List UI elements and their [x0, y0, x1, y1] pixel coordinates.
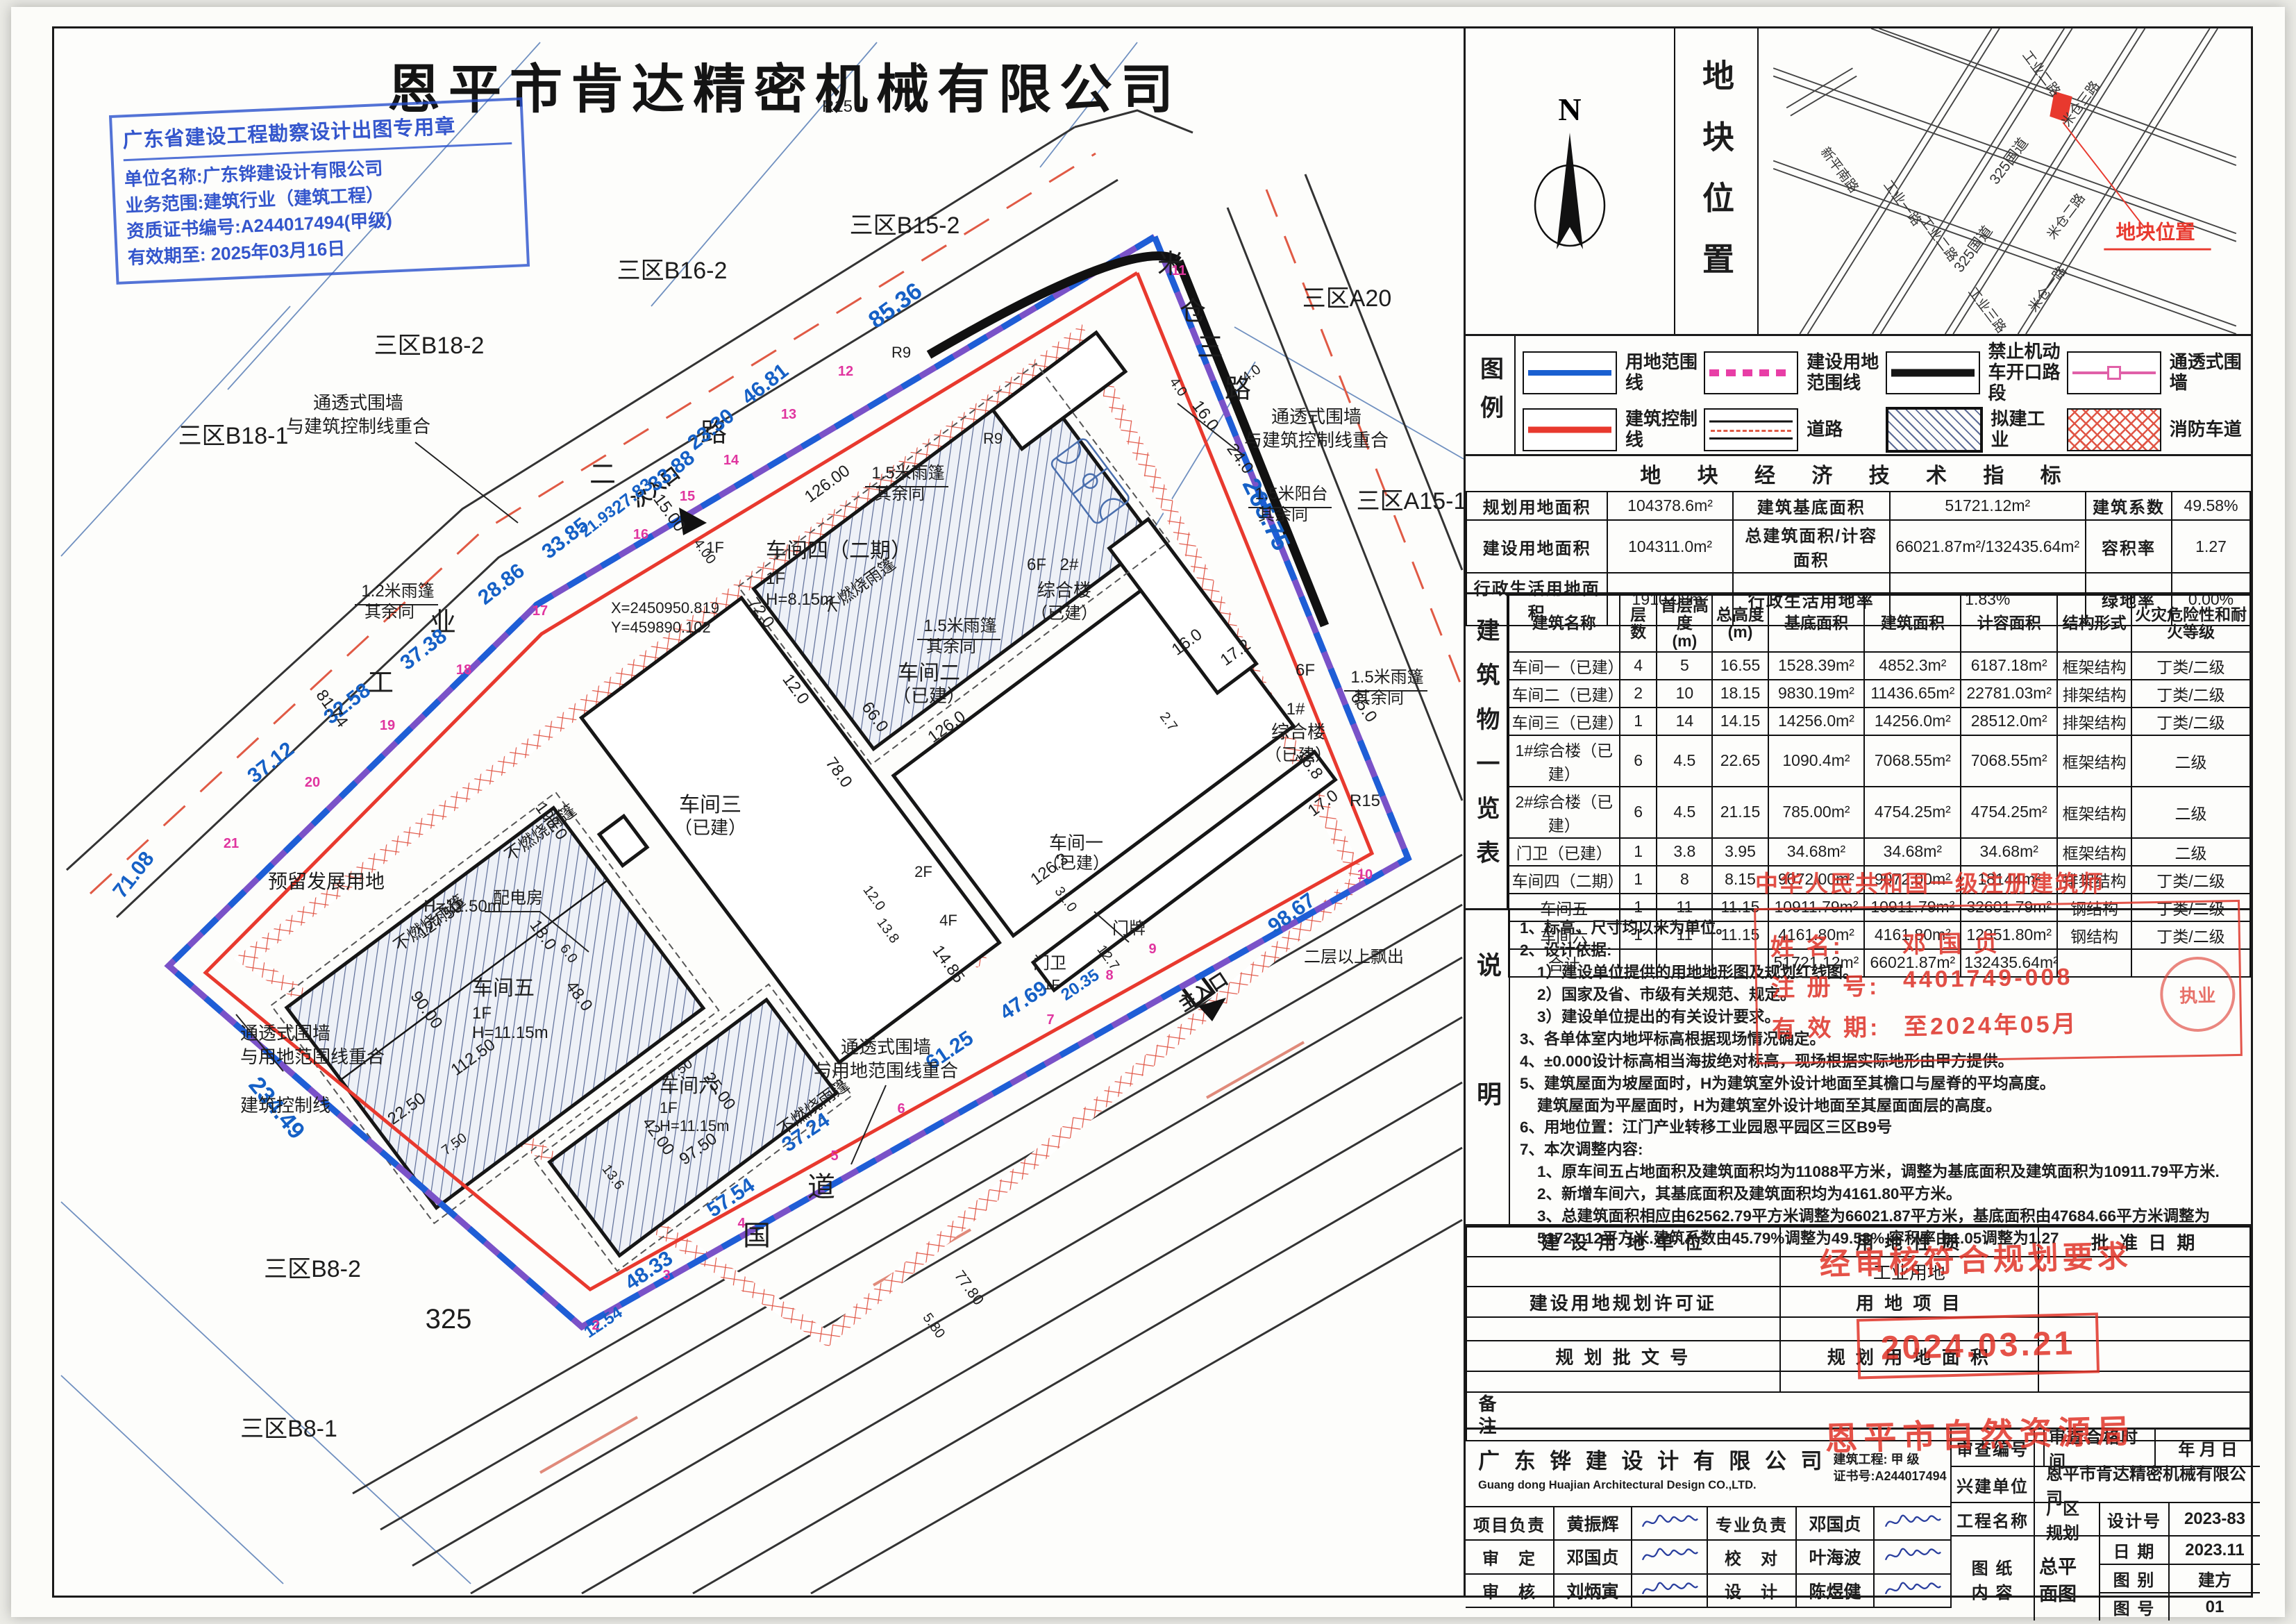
buildings-cell: 11436.65m² [1864, 680, 1961, 708]
company-cert: 证书号:A244017494 [1834, 1468, 1947, 1484]
econ-row: 建设用地面积104311.0m²总建筑面积/计容面积66021.87m²/132… [1466, 520, 2250, 573]
buildings-cell: 4.5 [1657, 787, 1712, 838]
buildings-header: 建筑名称 [1509, 595, 1620, 652]
buildings-row: 1#综合楼（已建）64.522.651090.4m²7068.55m²7068.… [1509, 735, 2250, 787]
plan-label: R9 [891, 344, 911, 361]
map-side-title: 地块位置 [1693, 59, 1739, 303]
date-value: 2023.11 [2170, 1537, 2260, 1564]
location-map: 新平南路工业一路工业二路工业二路工业三路325国道325国道米仓三路米仓二路米仓… [1759, 28, 2251, 334]
plan-label: 与建筑控制线重合 [1244, 430, 1389, 451]
location-map-svg: 新平南路工业一路工业二路工业二路工业三路325国道325国道米仓三路米仓二路米仓… [1759, 28, 2251, 334]
personnel-name: 黄振辉 [1555, 1507, 1632, 1539]
notes-side-col: 说明 [1466, 910, 1510, 1224]
legend-swatch-blue [1523, 351, 1617, 394]
plan-label: （已建） [1265, 746, 1332, 764]
econ-label: 容积率 [2086, 520, 2172, 573]
note-line: 5、建筑屋面为坡屋面时，H为建筑室外设计地面至其檐口与屋脊的平均高度。 [1520, 1073, 2247, 1095]
buildings-cell: 4852.3m² [1864, 652, 1961, 680]
buildings-cell: 9830.19m² [1768, 680, 1865, 708]
plan-label: （已建） [1031, 604, 1098, 623]
plan-label: 工业二路 [1917, 213, 1961, 265]
econ-section: 地 块 经 济 技 术 指 标 规划用地面积104378.6m²建筑基底面积51… [1466, 456, 2251, 594]
legend-label: 通透式围墙 [2170, 352, 2244, 394]
buildings-cell: 4754.25m² [1961, 787, 2057, 838]
buildings-cell: 34.68m² [1864, 838, 1961, 866]
plan-label: X=2450950.819 [611, 599, 719, 617]
plan-label: 7 [1046, 1012, 1054, 1028]
note-line: 1、原车间五占地面积及建筑面积均为11088平方米，调整为基底面积及建筑面积为1… [1520, 1161, 2247, 1183]
buildings-cell: 14256.0m² [1864, 708, 1961, 735]
blue-design-stamp: 广东省建设工程勘察设计出图专用章 单位名称:广东铧建设计有限公司 业务范围:建筑… [109, 97, 530, 285]
plan-label: 1F [1044, 978, 1059, 993]
map-side-title-col: 地块位置 [1674, 28, 1759, 334]
plan-label: 三区A20 [1302, 285, 1392, 312]
bldg-power-room [599, 816, 647, 865]
project-value: 厂区规划 [2035, 1503, 2100, 1535]
legend-item: 用地范围线 [1523, 342, 1700, 404]
personnel-name: 邓国贞 [1797, 1507, 1875, 1539]
plan-label: 车间六 [660, 1075, 718, 1096]
plan-label: 46.81 [737, 359, 792, 409]
company-name-en: Guang dong Huajian Architectural Design … [1478, 1479, 1827, 1492]
buildings-side-title: 建筑物一览表 [1469, 618, 1503, 885]
buildings-cell: 3.95 [1712, 838, 1768, 866]
personnel-role: 项目负责 [1466, 1507, 1555, 1539]
plan-label: 11 [1171, 263, 1186, 278]
buildings-side-col: 建筑物一览表 [1466, 594, 1508, 908]
right-panel: N 地块位置 [1464, 28, 2251, 1596]
econ-label: 建筑基底面积 [1733, 492, 1890, 520]
plan-label: 1F [766, 569, 785, 588]
buildings-cell: 丁类/二级 [2131, 708, 2250, 735]
legend-swatch-pinkwall [2067, 351, 2161, 394]
arch-name-label: 姓 名: [1770, 926, 1903, 962]
plan-label: 14 [723, 453, 739, 468]
arch-reg: 4401749-008 [1903, 964, 2073, 1001]
builder-label: 兴建单位 [1952, 1467, 2035, 1502]
sheet-value: 总平面图 [2035, 1537, 2100, 1621]
buildings-cell: 框架结构 [2057, 787, 2131, 838]
buildings-cell: 车间四（二期） [1509, 866, 1620, 894]
personnel-cell: 审 核刘炳寅 [1466, 1575, 1708, 1608]
buildings-cell: 1 [1620, 866, 1657, 894]
signature-scribble-icon [1883, 1509, 1943, 1537]
plan-label: 二层以上飘出 [1304, 948, 1404, 966]
buildings-cell: 丁类/二级 [2131, 652, 2250, 680]
buildings-cell: 10 [1657, 680, 1712, 708]
personnel-signature [1632, 1541, 1707, 1573]
north-label: N [1558, 92, 1581, 127]
legend-label: 道路 [1807, 419, 1843, 440]
plan-label: 车间五 [472, 977, 535, 1000]
personnel-name: 叶海波 [1797, 1541, 1875, 1573]
personnel-role: 审 定 [1466, 1541, 1555, 1573]
buildings-cell: 二级 [2131, 787, 2250, 838]
buildings-section: 建筑物一览表 建筑名称层数首层高度 (m)总高度 (m)基底面积建筑面积计容面积… [1466, 594, 2251, 910]
econ-title: 地 块 经 济 技 术 指 标 [1466, 456, 2251, 491]
plan-label: 三区B15-2 [850, 212, 960, 239]
plan-label: 3 [662, 1268, 670, 1283]
plan-label: 1.5米阳台 [1255, 485, 1327, 503]
plan-label: 13 [781, 407, 796, 422]
plan-label: 2F [914, 863, 932, 880]
buildings-row: 车间三（已建）11414.1514256.0m²14256.0m²28512.0… [1509, 708, 2250, 735]
buildings-cell: 5 [1657, 652, 1712, 680]
plan-label: 77.80 [951, 1267, 988, 1308]
plan-label: 325国道 [1951, 223, 1996, 275]
buildings-cell: 34.68m² [1961, 838, 2057, 866]
project-label: 工程名称 [1952, 1503, 2035, 1535]
personnel-signature [1632, 1507, 1707, 1539]
econ-row: 规划用地面积104378.6m²建筑基底面积51721.12m²建筑系数49.5… [1466, 492, 2250, 520]
personnel-role: 设 计 [1708, 1575, 1797, 1607]
buildings-cell: 7068.55m² [1961, 735, 2057, 787]
buildings-cell: 排架结构 [2057, 680, 2131, 708]
north-arrow-icon: N [1518, 84, 1622, 278]
buildings-cell: 丁类/二级 [2131, 680, 2250, 708]
plan-label: 18 [456, 662, 471, 678]
plan-label: 325 [426, 1304, 472, 1334]
design-no-label: 设计号 [2100, 1503, 2170, 1535]
buildings-cell: 6 [1620, 787, 1657, 838]
plan-label: 三区B16-2 [617, 258, 728, 284]
plan-label: R9 [983, 430, 1003, 447]
buildings-cell: 3.8 [1657, 838, 1712, 866]
plan-label: 其余同 [1354, 689, 1404, 708]
plan-label: 1F [472, 1004, 492, 1023]
plan-label: 米仓二路 [2044, 191, 2088, 242]
buildings-row: 门卫（已建）13.83.9534.68m²34.68m²34.68m²框架结构二… [1509, 838, 2250, 866]
plan-label: 2# [1060, 555, 1079, 574]
date-label: 日 期 [2100, 1537, 2170, 1564]
buildings-cell: 4.5 [1657, 735, 1712, 787]
notes-side-title: 说明 [1469, 924, 1505, 1210]
arch-valid: 至2024年05月 [1904, 1005, 2079, 1041]
plan-label: 1.5米雨篷 [1350, 668, 1423, 687]
plan-label: 5 [830, 1148, 838, 1164]
econ-value: 1.27 [2172, 520, 2250, 573]
buildings-cell: 二级 [2131, 735, 2250, 787]
plan-label: 17 [533, 603, 548, 619]
buildings-header: 首层高度 (m) [1657, 595, 1712, 652]
legend-item: 拟建工业 [1886, 407, 2063, 453]
buildings-cell: 21.15 [1712, 787, 1768, 838]
plan-label: 通透式围墙 [841, 1037, 931, 1057]
buildings-cell: 车间一（已建） [1509, 652, 1620, 680]
plan-label: 米仓一路 [2026, 263, 2070, 315]
buildings-header: 计容面积 [1961, 595, 2057, 652]
buildings-header: 火灾危险性和耐火等级 [2131, 595, 2250, 652]
legend-label: 建设用地 范围线 [1807, 352, 1879, 394]
buildings-cell: 785.00m² [1768, 787, 1865, 838]
plan-label: 工业三路 [1965, 285, 2009, 334]
buildings-cell: 1 [1620, 838, 1657, 866]
north-arrow-box: N [1466, 28, 1674, 334]
approval-value [1466, 1317, 1780, 1341]
personnel-grid: 项目负责黄振辉专业负责邓国贞审 定邓国贞校 对叶海波审 核刘炳寅设 计陈煜健 [1466, 1507, 1950, 1608]
legend-label: 用地范围线 [1625, 352, 1700, 394]
architect-stamp-title: 中华人民共和国一级注册建筑师 [1755, 865, 2241, 898]
legend-item: 消防车道 [2067, 407, 2244, 453]
plan-label: 通透式围墙 [1271, 406, 1361, 427]
plan-label: 4 [737, 1216, 746, 1231]
personnel-name: 刘炳寅 [1555, 1575, 1632, 1607]
buildings-cell: 车间三（已建） [1509, 708, 1620, 735]
buildings-cell: 22781.03m² [1961, 680, 2057, 708]
buildings-cell: 8 [1657, 866, 1712, 894]
plan-label: 37.38 [396, 624, 451, 674]
buildings-cell: 1528.39m² [1768, 652, 1865, 680]
buildings-cell: 14256.0m² [1768, 708, 1865, 735]
plan-label: 其余同 [1258, 505, 1308, 524]
drawing-sheet: 三区B15-2三区B16-2三区B18-2三区B18-1三区A20三区A15-1… [0, 0, 2296, 1624]
econ-label: 规划用地面积 [1466, 492, 1607, 520]
buildings-cell: 6187.18m² [1961, 652, 2057, 680]
legend-item: 禁止机动车开口路段 [1886, 342, 2063, 404]
legend-label: 消防车道 [2170, 419, 2242, 440]
legend-side-col: 图例 [1466, 336, 1516, 454]
gov-stamp-date: 2024.03.21 [1857, 1312, 2100, 1379]
personnel-name: 陈煜健 [1797, 1575, 1875, 1607]
approval-label: 建 设 用 地 单 位 [1466, 1227, 1780, 1257]
plan-label: 85.36 [864, 278, 927, 334]
buildings-cell: 车间二（已建） [1509, 680, 1620, 708]
plan-label: 325国道 [1986, 135, 2031, 187]
note-line: 2、新增车间六，其基底面积及建筑面积均为4161.80平方米。 [1520, 1183, 2247, 1205]
plan-label: 5.80 [920, 1310, 948, 1341]
buildings-cell: 16.55 [1712, 652, 1768, 680]
plan-label: 6F [1296, 661, 1315, 680]
plan-label: 通透式围墙 [313, 392, 403, 413]
arch-reg-label: 注 册 号: [1771, 966, 1904, 1003]
gov-approval-stamp: 经审核符合规划要求 2024.03.21 恩平市自然资源局 [1746, 1229, 2210, 1462]
plan-label: 综合楼 [1037, 580, 1091, 601]
plan-label: 三 [1197, 333, 1223, 362]
personnel-signature [1875, 1541, 1950, 1573]
personnel-cell: 设 计陈煜健 [1708, 1575, 1950, 1608]
plan-label: 其余同 [926, 637, 976, 656]
plan-label: 三区B18-1 [178, 423, 289, 449]
plan-label: 16 [633, 527, 648, 542]
plan-label: 三区B18-2 [374, 333, 485, 359]
plan-label: 通透式围墙 [240, 1023, 330, 1044]
plan-label: （已建） [1043, 854, 1109, 873]
plan-label: 道 [807, 1172, 835, 1203]
econ-value: 66021.87m²/132435.64m² [1890, 520, 2086, 573]
econ-label: 建筑系数 [2086, 492, 2172, 520]
approval-label: 规 划 批 文 号 [1466, 1341, 1780, 1371]
econ-value: 49.58% [2172, 492, 2250, 520]
arch-valid-label: 有 效 期: [1772, 1007, 1904, 1044]
personnel-cell: 审 定邓国贞 [1466, 1541, 1708, 1574]
plan-label: Y=459890.102 [611, 619, 711, 636]
note-line: 7、本次调整内容: [1520, 1139, 2247, 1161]
buildings-cell: 1 [1620, 708, 1657, 735]
buildings-cell: 框架结构 [2057, 652, 2131, 680]
note-line: 3、总建筑面积相应由62562.79平方米调整为66021.87平方米，基底面积… [1520, 1205, 2247, 1228]
legend-swatch-black [1886, 351, 1980, 394]
plan-label: 预留发展用地 [268, 871, 385, 892]
plan-label: 1.5米雨篷 [923, 617, 996, 635]
plan-label: 1# [1287, 700, 1305, 719]
plan-label: 三区B8-1 [240, 1416, 337, 1442]
personnel-role: 专业负责 [1708, 1507, 1797, 1539]
buildings-cell: 框架结构 [2057, 735, 2131, 787]
plan-label: 28.86 [474, 559, 528, 609]
signature-scribble-icon [1640, 1543, 1700, 1571]
plan-label: 126.00 [801, 461, 853, 506]
cat-value: 建方 [2170, 1565, 2260, 1592]
econ-value: 104311.0m² [1607, 520, 1733, 573]
buildings-cell: 2#综合楼（已建） [1509, 787, 1620, 838]
plan-label: 12 [838, 364, 853, 379]
personnel-role: 校 对 [1708, 1541, 1797, 1573]
signature-scribble-icon [1883, 1543, 1943, 1571]
legend-section: 图例 用地范围线建设用地 范围线禁止机动车开口路段通透式围墙建筑控制线道路拟建工… [1466, 336, 2251, 456]
legend-swatch-hatch [1886, 407, 1983, 453]
econ-label: 总建筑面积/计容面积 [1733, 520, 1890, 573]
buildings-row: 车间一（已建）4516.551528.39m²4852.3m²6187.18m²… [1509, 652, 2250, 680]
personnel-signature [1632, 1575, 1707, 1607]
plan-label: 车间二 [898, 662, 960, 685]
buildings-header-row: 建筑名称层数首层高度 (m)总高度 (m)基底面积建筑面积计容面积结构形式火灾危… [1509, 595, 2250, 652]
buildings-cell: 4 [1620, 652, 1657, 680]
buildings-header: 层数 [1620, 595, 1657, 652]
signature-scribble-icon [1640, 1577, 1700, 1605]
plan-label: 6 [897, 1101, 905, 1116]
architect-stamp: 中华人民共和国一级注册建筑师 姓 名:邓 国 贞 注 册 号:4401749-0… [1755, 865, 2241, 1060]
legend-item: 道路 [1704, 407, 1881, 453]
legend-swatch-pinkdash [1704, 351, 1798, 394]
personnel-cell: 项目负责黄振辉 [1466, 1507, 1708, 1541]
econ-value: 51721.12m² [1890, 492, 2086, 520]
plan-label: 2 [592, 1318, 599, 1333]
plan-label: 1F [660, 1099, 678, 1116]
plan-label: 三区A15-1 [1357, 488, 1464, 514]
buildings-cell: 6 [1620, 735, 1657, 787]
legend-label: 禁止机动车开口路段 [1988, 342, 2063, 404]
signature-scribble-icon [1883, 1577, 1943, 1605]
buildings-cell: 4754.25m² [1864, 787, 1961, 838]
no-value: 01 [2170, 1593, 2260, 1621]
plan-label: 9 [1148, 941, 1156, 957]
plan-label: （已建） [893, 685, 965, 706]
legend-item: 建筑控制线 [1523, 407, 1700, 453]
legend-item: 通透式围墙 [2067, 342, 2244, 404]
legend-swatch-xhatch [2067, 408, 2161, 451]
buildings-row: 车间二（已建）21018.159830.19m²11436.65m²22781.… [1509, 680, 2250, 708]
plan-label: 其余同 [364, 603, 414, 621]
buildings-cell: 34.68m² [1768, 838, 1865, 866]
plan-label: 建筑控制线 [240, 1095, 330, 1116]
plan-label: 1.2米雨篷 [361, 582, 434, 601]
plan-label: 三区B8-2 [264, 1256, 361, 1282]
plan-label: R15 [1350, 792, 1380, 810]
plan-label: 1.5米雨篷 [871, 464, 944, 483]
no-label: 图 号 [2100, 1593, 2170, 1621]
personnel-signature [1875, 1507, 1950, 1539]
buildings-cell: 排架结构 [2057, 708, 2131, 735]
cat-label: 图 别 [2100, 1565, 2170, 1592]
buildings-cell: 22.65 [1712, 735, 1768, 787]
plan-label: 10 [1357, 867, 1373, 882]
buildings-cell: 14 [1657, 708, 1712, 735]
plan-label: 二 [589, 460, 616, 489]
plan-label: 与用地范围线重合 [240, 1046, 385, 1067]
approval-value [1466, 1257, 1780, 1287]
buildings-cell: 18.15 [1712, 680, 1768, 708]
legend-item: 建设用地 范围线 [1704, 342, 1881, 404]
buildings-row: 2#综合楼（已建）64.521.15785.00m²4754.25m²4754.… [1509, 787, 2250, 838]
buildings-cell: 2 [1620, 680, 1657, 708]
legend-swatch-red [1523, 408, 1617, 451]
plan-label: 门牌 [1112, 919, 1146, 938]
plan-label: 地块位置 [2116, 221, 2195, 244]
plan-label: H=11.15m [472, 1023, 548, 1042]
buildings-header: 总高度 (m) [1712, 595, 1768, 652]
legend-label: 拟建工业 [1991, 409, 2063, 451]
buildings-cell: 1090.4m² [1768, 735, 1865, 787]
buildings-cell: 1#综合楼（已建） [1509, 735, 1620, 787]
plan-label: 车间三 [679, 794, 741, 817]
sheet-label: 图 纸 内 容 [1952, 1537, 2035, 1621]
plan-label: 与建筑控制线重合 [286, 416, 430, 437]
plan-label: （已建） [674, 817, 746, 838]
buildings-header: 建筑面积 [1864, 595, 1961, 652]
plan-label: 其余同 [875, 485, 925, 503]
legend-label: 建筑控制线 [1625, 409, 1700, 451]
plan-label: 4F [939, 912, 957, 929]
plan-label: 71.08 [108, 847, 158, 902]
personnel-name: 邓国贞 [1555, 1541, 1632, 1573]
note-line: 建筑屋面为平屋面时，H为建筑室外设计地面至其屋面面层的高度。 [1520, 1095, 2247, 1117]
plan-label: 配电房 [493, 889, 543, 907]
personnel-cell: 专业负责邓国贞 [1708, 1507, 1950, 1541]
approval-value [1466, 1371, 1780, 1392]
econ-value: 104378.6m² [1607, 492, 1733, 520]
arch-name: 邓 国 贞 [1902, 924, 2001, 960]
econ-label: 建设用地面积 [1466, 520, 1607, 573]
plan-label: 仓 [1180, 297, 1206, 326]
personnel-signature [1875, 1575, 1950, 1607]
signature-scribble-icon [1640, 1509, 1700, 1537]
buildings-cell: 门卫（已建） [1509, 838, 1620, 866]
buildings-header: 基底面积 [1768, 595, 1865, 652]
location-map-section: N 地块位置 [1466, 28, 2251, 336]
buildings-cell: 14.15 [1712, 708, 1768, 735]
buildings-cell: 28512.0m² [1961, 708, 2057, 735]
plan-label: 19 [380, 718, 395, 733]
plan-label: 车间一 [1049, 832, 1103, 853]
plan-label: 新平南路 [1818, 144, 1861, 196]
plan-label: 15 [680, 489, 695, 504]
buildings-cell: 框架结构 [2057, 838, 2131, 866]
design-no-value: 2023-83 [2170, 1503, 2260, 1535]
approval-label: 建设用地规划许可证 [1466, 1287, 1780, 1317]
buildings-cell: 二级 [2131, 838, 2250, 866]
plan-label: 门卫 [1033, 954, 1066, 973]
personnel-cell: 校 对叶海波 [1708, 1541, 1950, 1574]
legend-swatch-road [1704, 408, 1798, 451]
buildings-cell: 7068.55m² [1864, 735, 1961, 787]
plan-label: 综合楼 [1271, 721, 1325, 742]
plan-label: 国 [743, 1221, 771, 1251]
plan-label: 21 [224, 836, 239, 851]
legend-title: 图例 [1473, 356, 1507, 434]
plan-label: 1F [706, 539, 724, 556]
legend-items: 用地范围线建设用地 范围线禁止机动车开口路段通透式围墙建筑控制线道路拟建工业消防… [1516, 336, 2251, 454]
plan-label: 20 [305, 775, 320, 790]
